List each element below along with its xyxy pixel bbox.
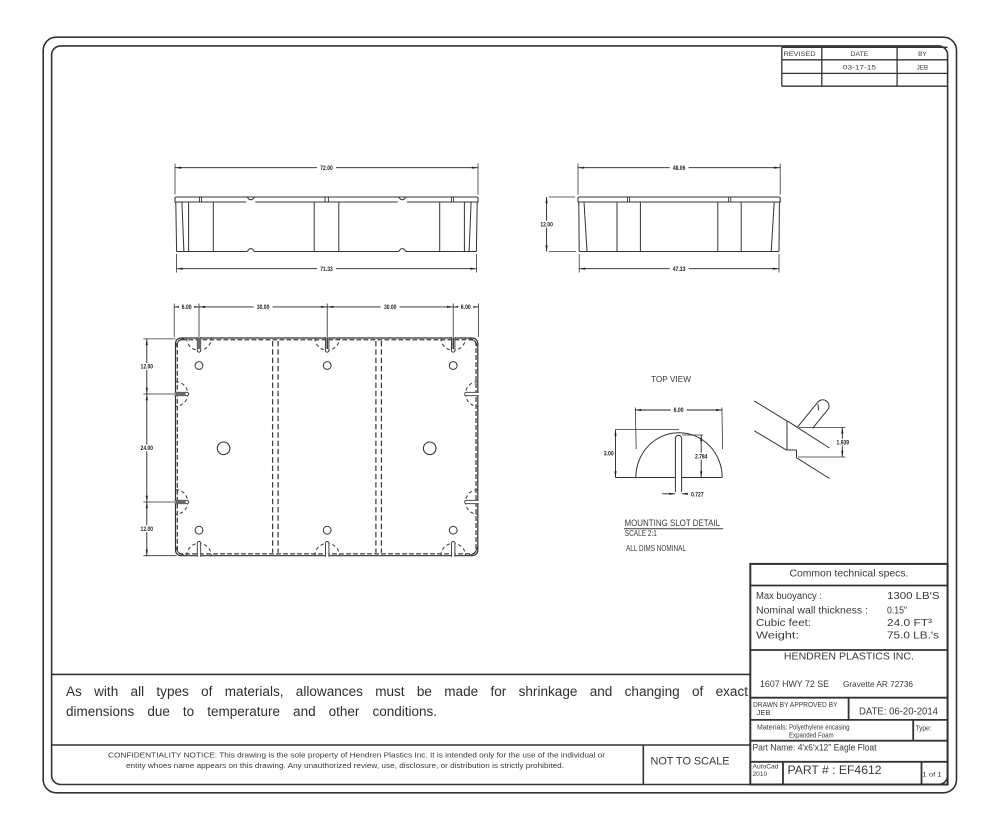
svg-text:DRAWN BY APPROVED BY: DRAWN BY APPROVED BY — [753, 702, 838, 709]
svg-text:Expanded Foam: Expanded Foam — [789, 730, 834, 739]
svg-text:Common technical specs.: Common technical specs. — [789, 568, 908, 580]
svg-text:Max buoyancy :: Max buoyancy : — [756, 591, 822, 602]
svg-text:JEB: JEB — [757, 710, 771, 717]
svg-text:SCALE 2:1: SCALE 2:1 — [625, 529, 657, 538]
svg-text:NOT TO SCALE: NOT TO SCALE — [651, 756, 730, 768]
svg-text:Nominal wall thickness :: Nominal wall thickness : — [756, 606, 868, 617]
svg-text:2010: 2010 — [753, 771, 768, 778]
svg-text:72.00: 72.00 — [320, 166, 333, 172]
svg-text:ALL DIMS NOMINAL: ALL DIMS NOMINAL — [626, 544, 686, 553]
svg-text:PART # : EF4612: PART # : EF4612 — [788, 763, 882, 777]
svg-text:03-17-15: 03-17-15 — [843, 65, 877, 72]
svg-text:DATE: 06-20-2014: DATE: 06-20-2014 — [859, 707, 938, 718]
svg-text:As with all types of materials: As with all types of materials, allowanc… — [66, 684, 748, 699]
svg-text:0.727: 0.727 — [691, 493, 704, 499]
svg-text:12.00: 12.00 — [540, 222, 553, 228]
svg-text:6.00: 6.00 — [674, 408, 685, 414]
svg-text:BY: BY — [918, 51, 927, 58]
svg-text:30.00: 30.00 — [384, 305, 397, 311]
svg-text:Part Name: 4'x6'x12" Eagle Fl: Part Name: 4'x6'x12" Eagle Float — [753, 743, 877, 753]
svg-text:48.06: 48.06 — [673, 166, 686, 172]
svg-text:Type:: Type: — [916, 723, 932, 732]
svg-text:2.784: 2.784 — [695, 454, 708, 460]
svg-text:TOP VIEW: TOP VIEW — [651, 374, 691, 384]
svg-text:Weight:: Weight: — [756, 631, 799, 642]
svg-text:3.00: 3.00 — [604, 452, 615, 458]
svg-text:1300 LB'S: 1300 LB'S — [887, 591, 940, 602]
svg-text:HENDREN PLASTICS INC.: HENDREN PLASTICS INC. — [784, 651, 914, 663]
svg-text:Gravette AR 72736: Gravette AR 72736 — [843, 679, 913, 689]
svg-text:AutoCad: AutoCad — [753, 764, 779, 771]
svg-text:REVISED: REVISED — [784, 51, 817, 58]
svg-text:entity whoes name appears on t: entity whoes name appears on this drawin… — [126, 761, 564, 770]
svg-text:JEB: JEB — [917, 65, 929, 72]
svg-text:dimensions due to temperature: dimensions due to temperature and other … — [66, 704, 437, 719]
svg-text:6.00: 6.00 — [182, 305, 193, 311]
svg-text:24.00: 24.00 — [141, 446, 154, 452]
svg-text:30.00: 30.00 — [257, 305, 270, 311]
svg-text:12.00: 12.00 — [141, 527, 154, 533]
svg-text:1 of 1: 1 of 1 — [922, 772, 942, 779]
svg-text:75.0 LB.'s: 75.0 LB.'s — [887, 631, 939, 642]
svg-text:CONFIDENTIALITY NOTICE: This d: CONFIDENTIALITY NOTICE: This drawing is … — [108, 751, 606, 760]
svg-text:6.00: 6.00 — [461, 305, 472, 311]
svg-text:MOUNTING SLOT DETAIL: MOUNTING SLOT DETAIL — [625, 518, 721, 529]
svg-text:Cubic feet:: Cubic feet: — [756, 618, 811, 629]
svg-text:47.33: 47.33 — [673, 267, 686, 273]
svg-text:12.00: 12.00 — [141, 365, 154, 371]
svg-text:Materials:: Materials: — [757, 722, 788, 731]
svg-text:1.939: 1.939 — [837, 440, 850, 446]
svg-text:24.0 FT³: 24.0 FT³ — [887, 618, 933, 629]
svg-text:0.15": 0.15" — [887, 606, 907, 617]
svg-text:71.33: 71.33 — [320, 267, 333, 273]
svg-text:DATE: DATE — [850, 51, 868, 58]
svg-text:1607 HWY 72 SE: 1607 HWY 72 SE — [760, 679, 829, 689]
